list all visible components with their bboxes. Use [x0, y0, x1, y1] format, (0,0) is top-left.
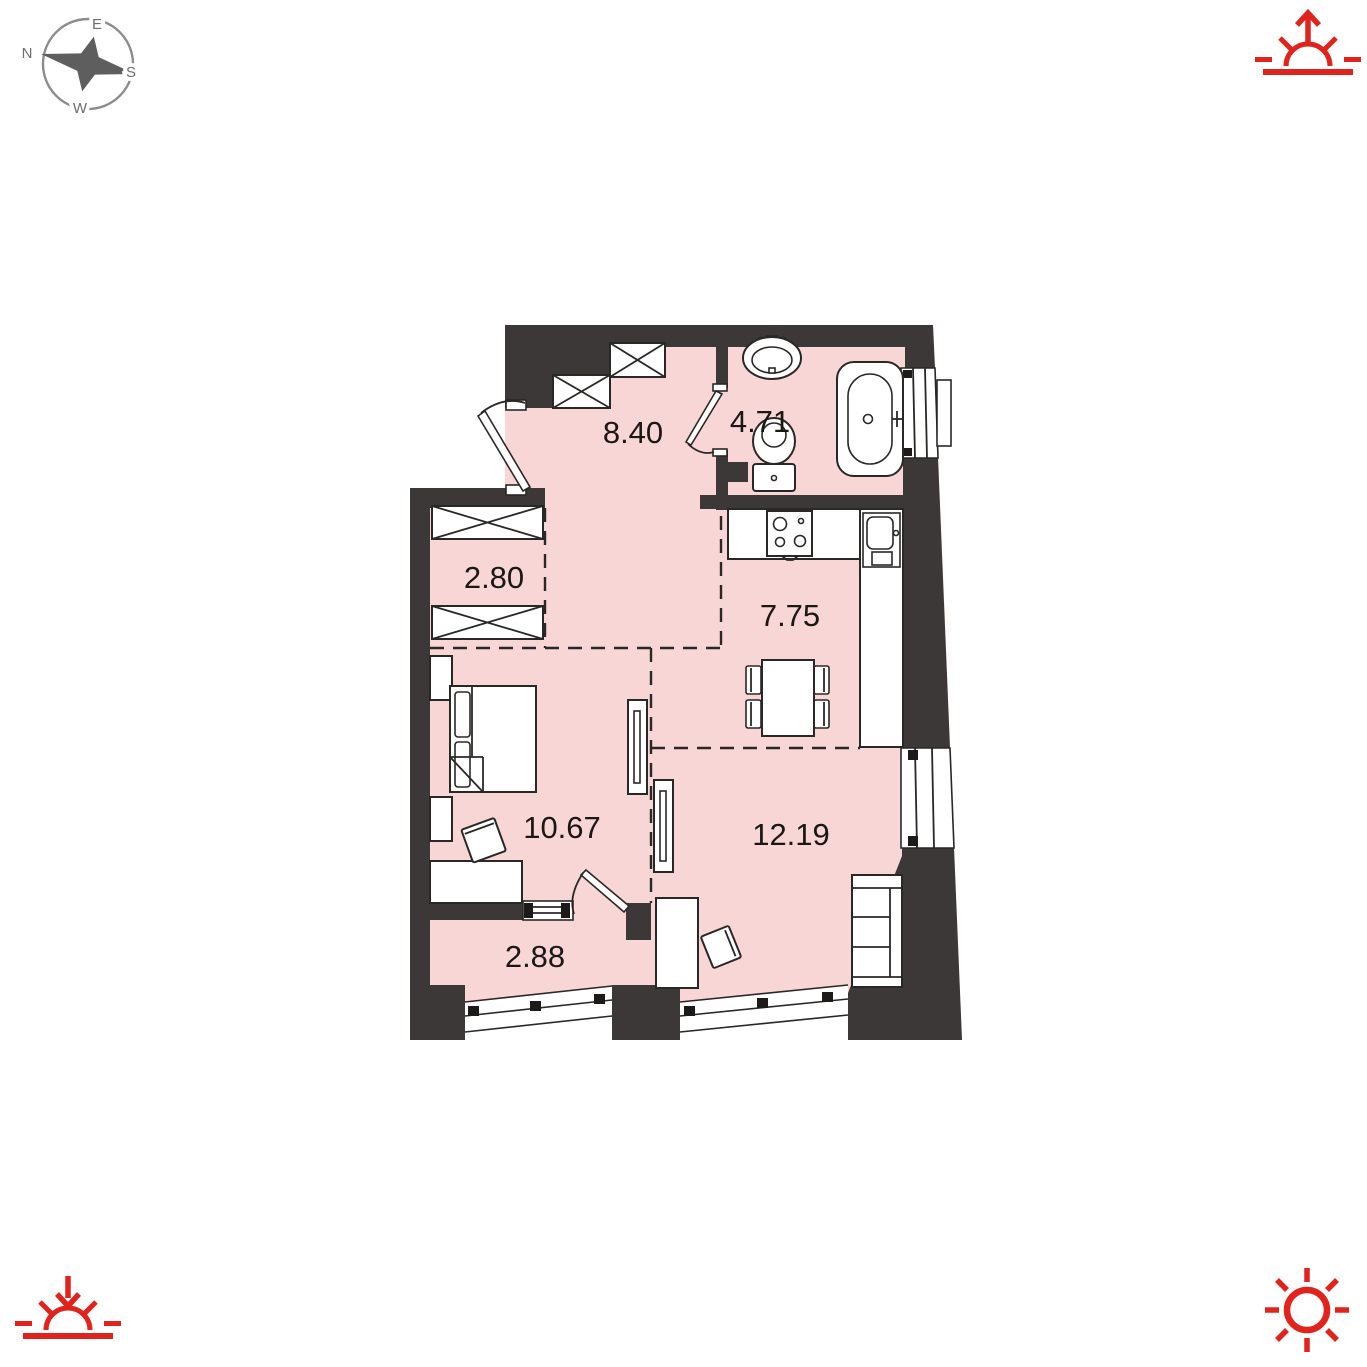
- sunset-icon: [15, 1276, 121, 1339]
- room-label-balcony: 2.88: [505, 939, 565, 974]
- room-label-kitchen: 7.75: [760, 598, 820, 633]
- room-label-closet: 2.80: [464, 560, 524, 595]
- sofa: [852, 875, 902, 987]
- room-label-bathroom: 4.71: [730, 404, 790, 439]
- floor-plan-page: N E S W: [0, 0, 1367, 1367]
- sunrise-icon: [1255, 13, 1361, 75]
- compass-label-east: E: [92, 16, 102, 33]
- compass-rose: N E S W: [22, 16, 141, 117]
- floor-plan: 8.40 4.71 2.80 7.75 10.67 12.19 2.88: [410, 325, 962, 1040]
- bathroom-sink: [743, 336, 801, 379]
- tv-stand: [656, 898, 698, 988]
- bedroom-desk: [430, 861, 522, 903]
- window-sill: [937, 380, 951, 446]
- bathroom-window: [901, 368, 951, 458]
- compass-label-south: S: [126, 64, 136, 81]
- sun-icon: [1265, 1268, 1349, 1352]
- compass-label-north: N: [22, 45, 33, 62]
- compass-label-west: W: [73, 100, 88, 117]
- stove: [767, 511, 812, 560]
- room-label-living-room: 12.19: [752, 817, 830, 852]
- floor-plan-canvas: N E S W: [0, 0, 1367, 1367]
- balcony-window: [523, 901, 573, 920]
- bathtub: [837, 362, 903, 476]
- room-label-bedroom: 10.67: [523, 810, 601, 845]
- living-room-window: [901, 748, 954, 848]
- room-label-hallway: 8.40: [603, 415, 663, 450]
- kitchen-sink: [863, 513, 900, 567]
